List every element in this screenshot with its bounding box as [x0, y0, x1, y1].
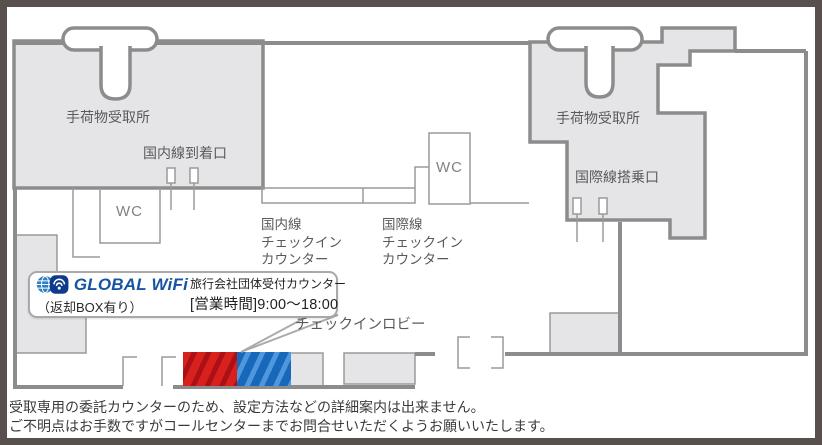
label-checkin-lobby: チェックインロビー — [295, 317, 426, 334]
global-wifi-badge: GLOBAL WiFi （返却BOX有り） 旅行会社団体受付カウンター [営業時… — [28, 271, 338, 318]
wifi-icon — [50, 273, 68, 296]
label-domestic-arrival-gate: 国内線到着口 — [143, 145, 227, 162]
lobby-block-1 — [288, 353, 323, 386]
brand-logo-text: GLOBAL WiFi — [74, 275, 188, 295]
wifi-counter-red-section — [183, 352, 237, 386]
label-wc-center: WC — [436, 159, 463, 176]
group-counter-name: 旅行会社団体受付カウンター — [190, 275, 346, 292]
return-box-note: （返却BOX有り） — [37, 297, 188, 316]
footnote-line1: 受取専用の委託カウンターのため、設定方法などの詳細案内は出来ません。 — [9, 397, 485, 417]
intl-gate-door-icon — [573, 198, 581, 214]
label-international-checkin-counter: 国際線 チェックイン カウンター — [382, 216, 463, 269]
lobby-block-2 — [344, 353, 415, 384]
business-hours: [営業時間]9:00～18:00 — [190, 293, 346, 314]
label-wc-left: WC — [116, 203, 143, 220]
domestic-gate-door-icon — [167, 168, 175, 183]
domestic-gate-door2-icon — [190, 168, 198, 183]
label-baggage-claim-right: 手荷物受取所 — [556, 110, 640, 127]
badge-info-block: 旅行会社団体受付カウンター [営業時間]9:00～18:00 — [188, 275, 346, 314]
airport-floor-map: GLOBAL WiFi （返却BOX有り） 旅行会社団体受付カウンター [営業時… — [0, 0, 822, 445]
wifi-counter-blue-section — [237, 352, 291, 386]
label-domestic-checkin-counter: 国内線 チェックイン カウンター — [261, 216, 342, 269]
label-baggage-claim-left: 手荷物受取所 — [66, 109, 150, 126]
lobby-block-3 — [550, 313, 620, 354]
footnote-line2: ご不明点はお手数ですがコールセンターまでお問合せいただくようお願いいたします。 — [9, 416, 554, 436]
label-international-boarding-gate: 国際線搭乗口 — [575, 169, 659, 186]
intl-gate-door2-icon — [599, 198, 607, 214]
badge-brand-block: GLOBAL WiFi （返却BOX有り） — [36, 275, 188, 314]
